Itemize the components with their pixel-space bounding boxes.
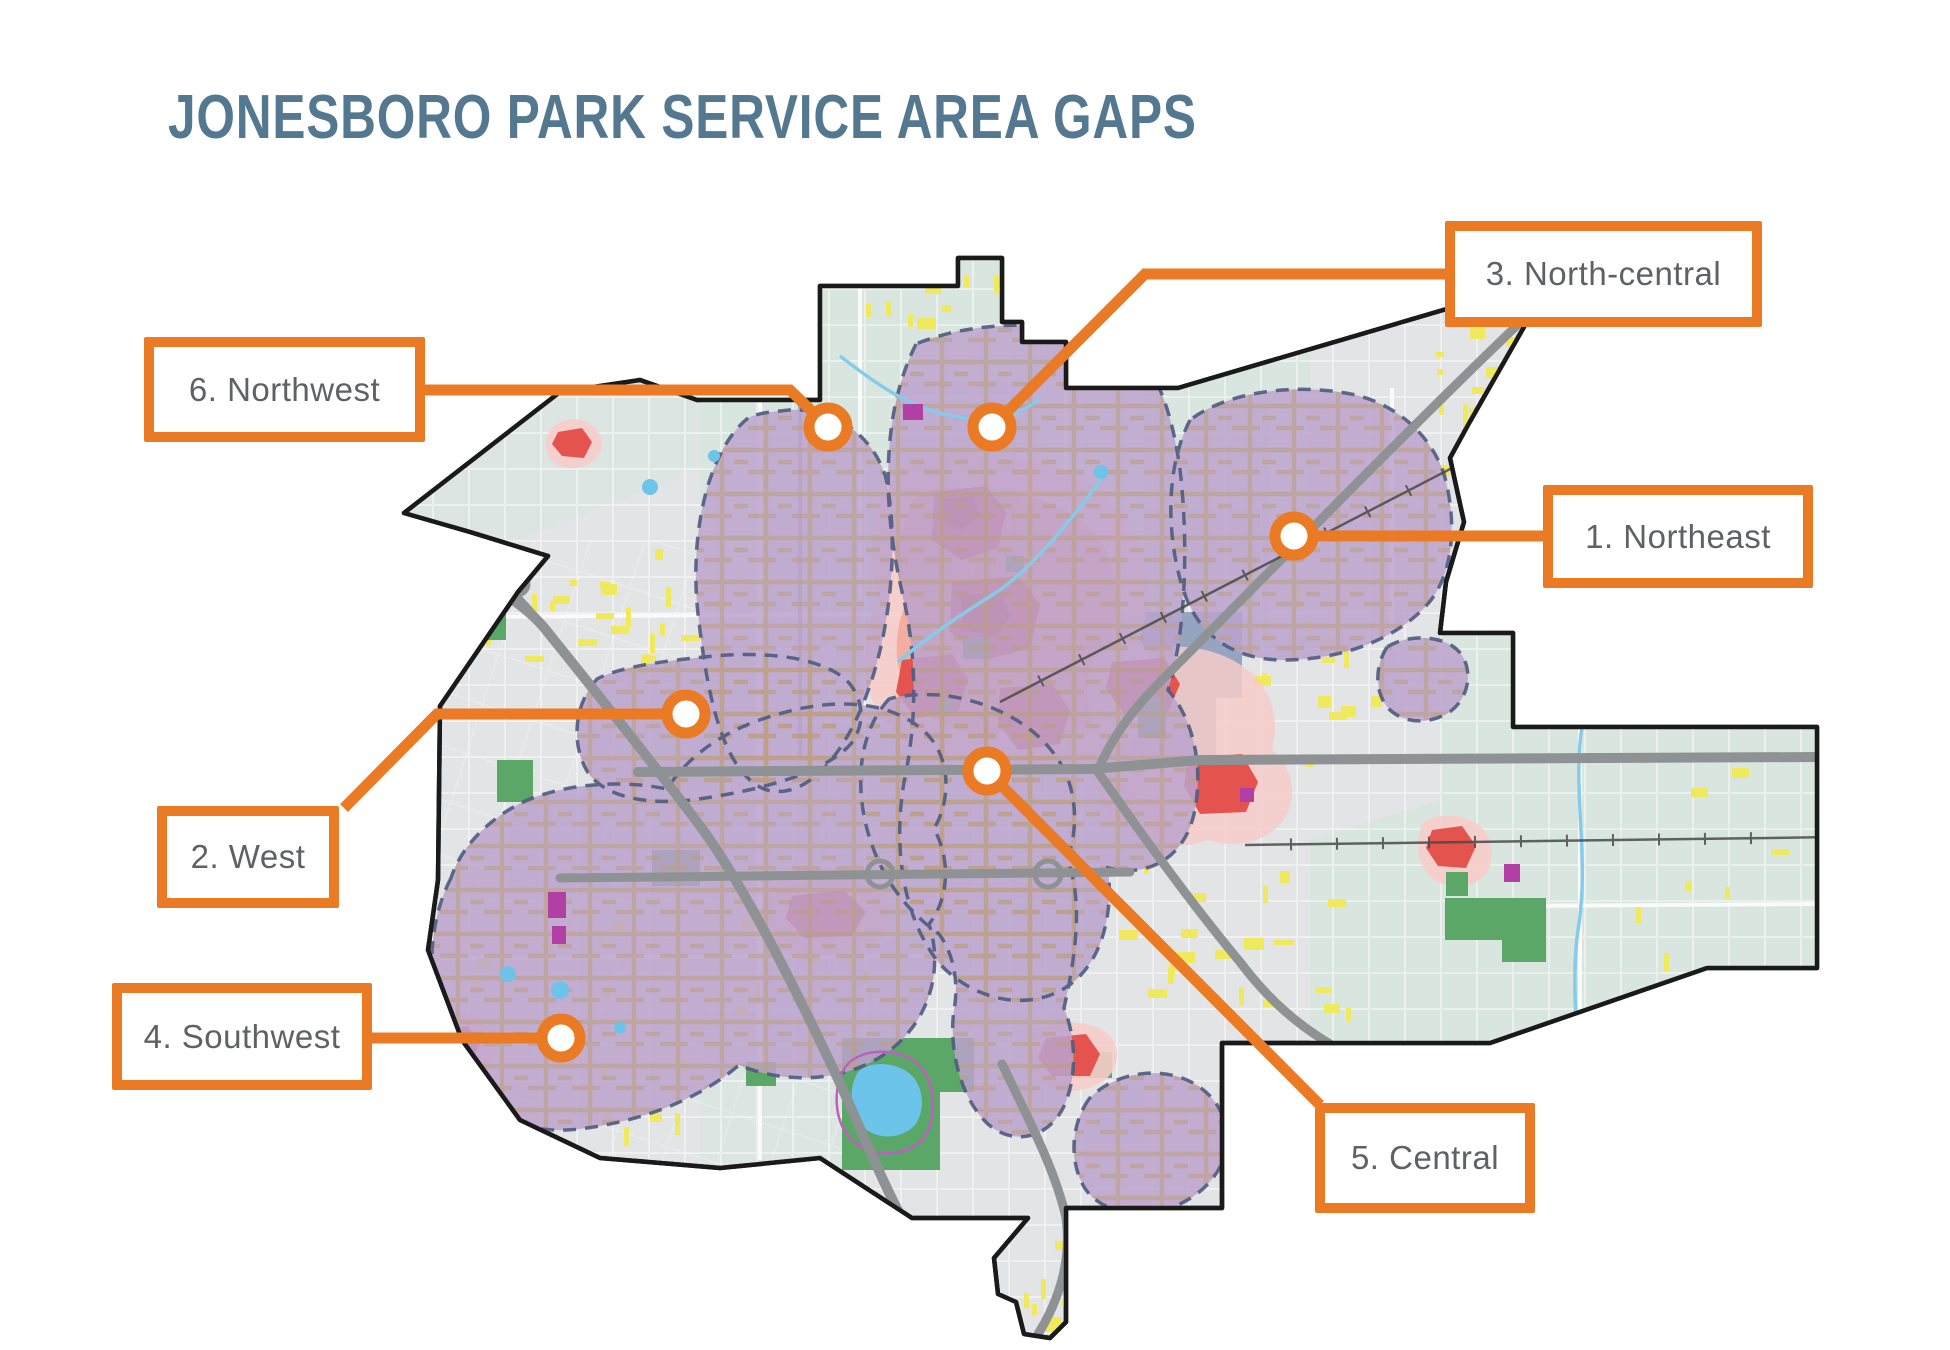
callout-label: 5. Central [1351,1139,1499,1177]
callout-label: 1. Northeast [1585,518,1771,556]
callout-label: 2. West [191,838,306,876]
callout-label: 6. Northwest [189,371,380,409]
callout-area-central: 5. Central [1315,1103,1535,1213]
callout-area-southwest: 4. Southwest [112,983,372,1090]
park-service-map-figure: 1. Northeast 2. West 3. North-central 4.… [0,0,1950,1350]
callout-label: 4. Southwest [144,1018,341,1056]
page-title: JONESBORO PARK SERVICE AREA GAPS [168,82,1197,153]
callout-area-north-central: 3. North-central [1445,221,1762,327]
callout-area-west: 2. West [157,806,339,908]
callout-area-northeast: 1. Northeast [1543,485,1813,588]
callout-area-northwest: 6. Northwest [144,337,425,442]
city-map-canvas [0,0,1950,1350]
callout-label: 3. North-central [1486,255,1721,293]
